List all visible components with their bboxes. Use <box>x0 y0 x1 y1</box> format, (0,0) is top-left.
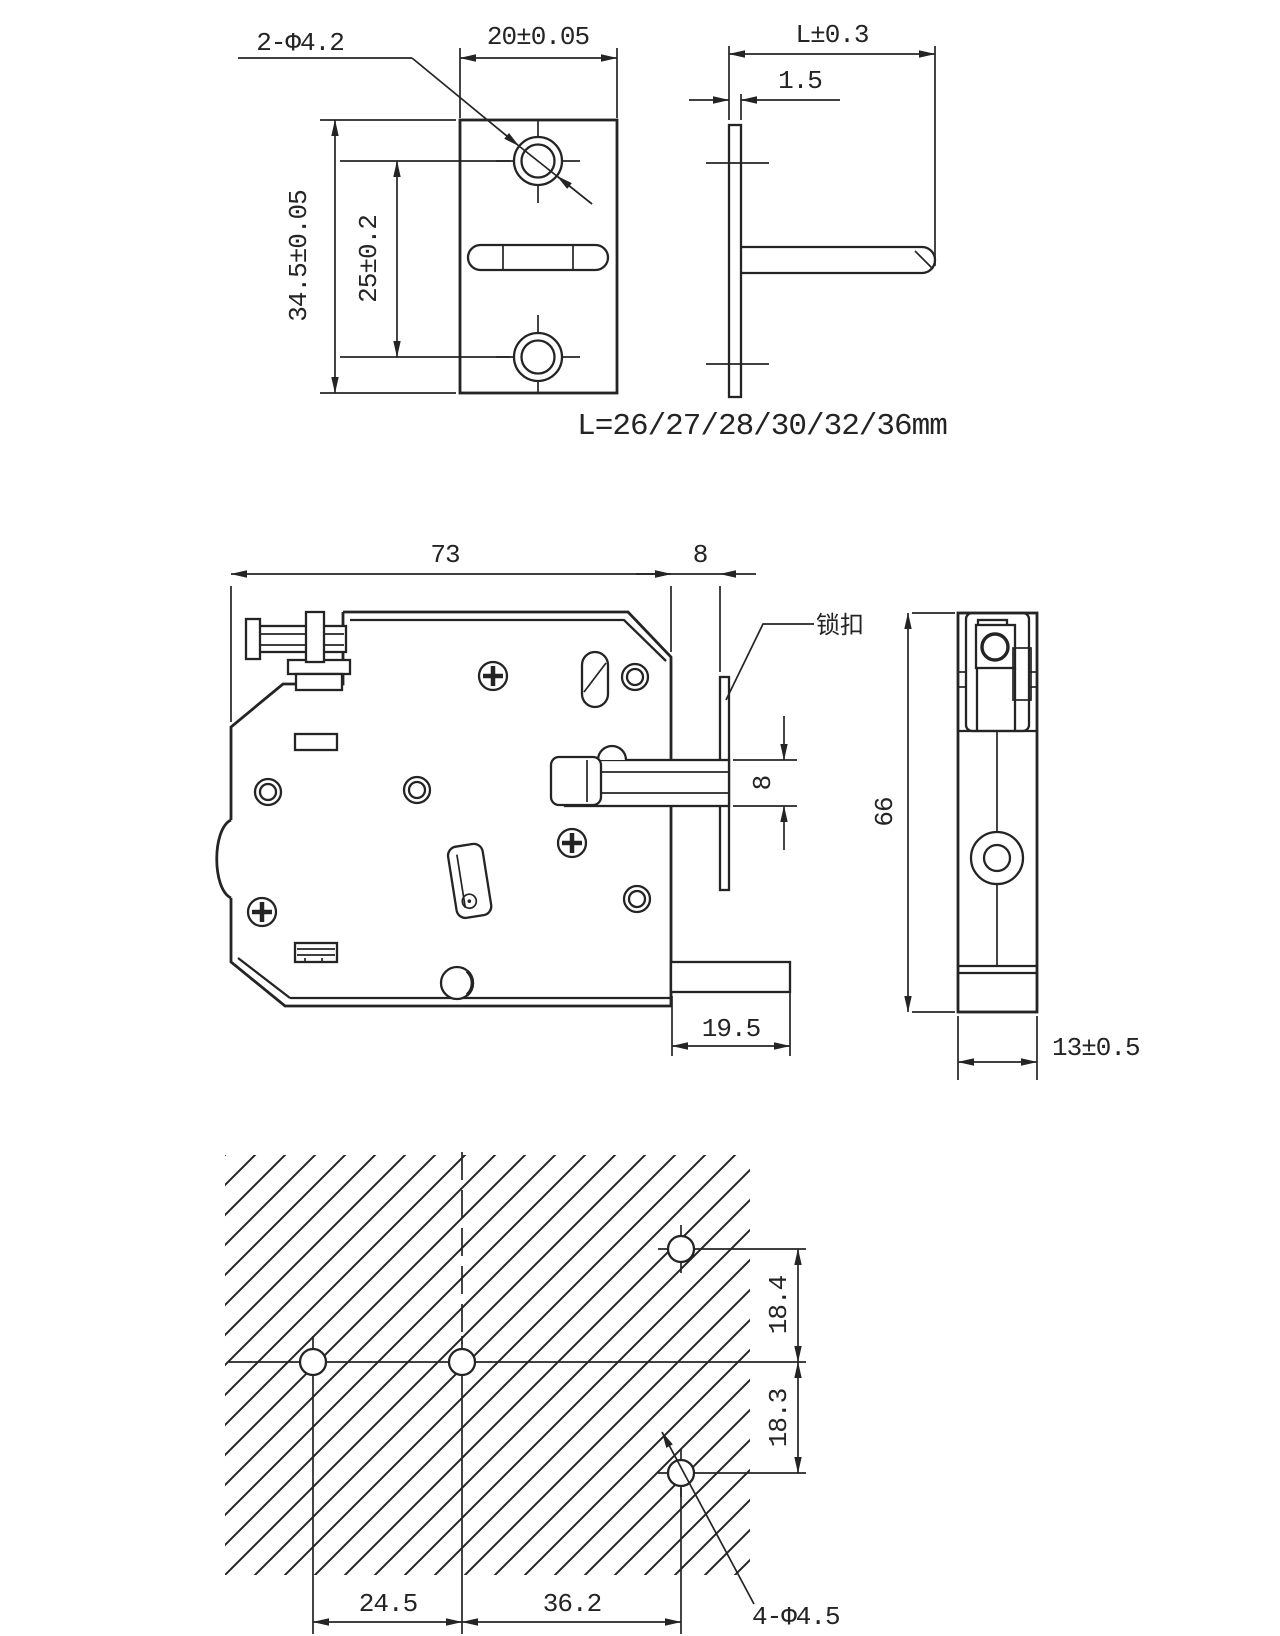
strike-plate-side-view: L±0.3 1.5 L=26/27/28/30/32/36mm <box>577 20 947 444</box>
rivet-hole <box>622 664 648 690</box>
dim-lower-offset-label: 18.3 <box>764 1389 794 1447</box>
technical-drawing-page: 20±0.05 34.5±0.05 25±0.2 2-Φ4.2 <box>0 0 1280 1636</box>
mounting-hole <box>300 1349 326 1375</box>
dim-spacing-right: 36.2 <box>462 1589 681 1622</box>
dim-plate-height-label: 34.5±0.05 <box>284 190 314 321</box>
dim-body-depth-label: 13±0.5 <box>1052 1033 1140 1063</box>
dim-pin-length: L±0.3 <box>729 20 935 266</box>
side-latch-housing <box>958 613 1037 731</box>
dim-plate-thickness: 1.5 <box>689 66 840 120</box>
dim-lower-offset: 18.3 <box>764 1362 798 1473</box>
strike-plate-front-view: 20±0.05 34.5±0.05 25±0.2 2-Φ4.2 <box>238 22 617 393</box>
mounting-hole <box>449 1349 475 1375</box>
plate-section <box>729 125 741 397</box>
lock-body-front-view: 73 8 锁扣 8 19.5 <box>217 540 864 1056</box>
dim-upper-offset: 18.4 <box>764 1249 798 1362</box>
dim-plate-gap-label: 8 <box>693 540 708 570</box>
wire-terminal <box>246 612 350 690</box>
left-edge-bump <box>217 820 231 898</box>
mounting-hole <box>668 1236 694 1262</box>
dim-plate-thickness-label: 1.5 <box>778 66 822 96</box>
latch-lever <box>447 843 493 920</box>
phillips-screw <box>558 829 586 857</box>
catch-label: 锁扣 <box>816 612 864 639</box>
lock-engineering-drawing: 20±0.05 34.5±0.05 25±0.2 2-Φ4.2 <box>0 0 1280 1636</box>
round-hole <box>441 967 473 999</box>
rivet-hole <box>624 886 650 912</box>
dim-foot-length-label: 19.5 <box>702 1014 760 1044</box>
rivet-hole <box>255 779 281 805</box>
dim-plate-width-label: 20±0.05 <box>487 22 589 52</box>
latch-pin <box>741 247 935 273</box>
catch-callout: 锁扣 <box>726 612 864 700</box>
dim-hole-spacing: 25±0.2 <box>340 161 510 357</box>
dim-plate-gap: 8 <box>636 540 756 672</box>
mounting-hole <box>668 1460 694 1486</box>
strike-plate-hole-bottom <box>496 315 580 392</box>
dim-hole-spacing-label: 25±0.2 <box>354 215 384 303</box>
rivet-hole <box>404 777 430 803</box>
side-boss-hole <box>971 832 1023 884</box>
strike-plate-slot <box>468 245 608 270</box>
dim-plate-width: 20±0.05 <box>460 22 617 118</box>
dim-bolt-height-label: 8 <box>748 776 778 791</box>
dim-body-width-label: 73 <box>430 540 459 570</box>
phillips-screw <box>479 662 507 690</box>
dim-bolt-height: 8 <box>733 716 797 850</box>
dim-spacing-right-label: 36.2 <box>543 1589 601 1619</box>
oblong-slot <box>582 652 608 707</box>
pin-length-note: L=26/27/28/30/32/36mm <box>577 409 947 444</box>
lock-body-side-view: 66 13±0.5 <box>870 613 1140 1080</box>
dim-spacing-left: 24.5 <box>313 1589 462 1622</box>
dim-body-height-label: 66 <box>870 797 900 826</box>
dim-body-height: 66 <box>870 613 955 1012</box>
dim-upper-offset-label: 18.4 <box>764 1275 794 1334</box>
vent-slot <box>295 943 337 962</box>
mounting-foot <box>671 962 790 992</box>
phillips-screw <box>248 898 276 926</box>
callout-plate-holes-label: 2-Φ4.2 <box>256 28 344 58</box>
rect-slot <box>295 734 337 750</box>
dim-spacing-left-label: 24.5 <box>359 1589 417 1619</box>
dim-body-depth: 13±0.5 <box>958 1016 1140 1080</box>
callout-mounting-holes-label: 4-Φ4.5 <box>752 1602 840 1632</box>
mounting-pattern-view: 18.4 18.3 24.5 36.2 4-Φ4.5 <box>225 1152 840 1634</box>
latch-bolt <box>551 746 729 806</box>
dim-pin-length-label: L±0.3 <box>795 20 868 50</box>
